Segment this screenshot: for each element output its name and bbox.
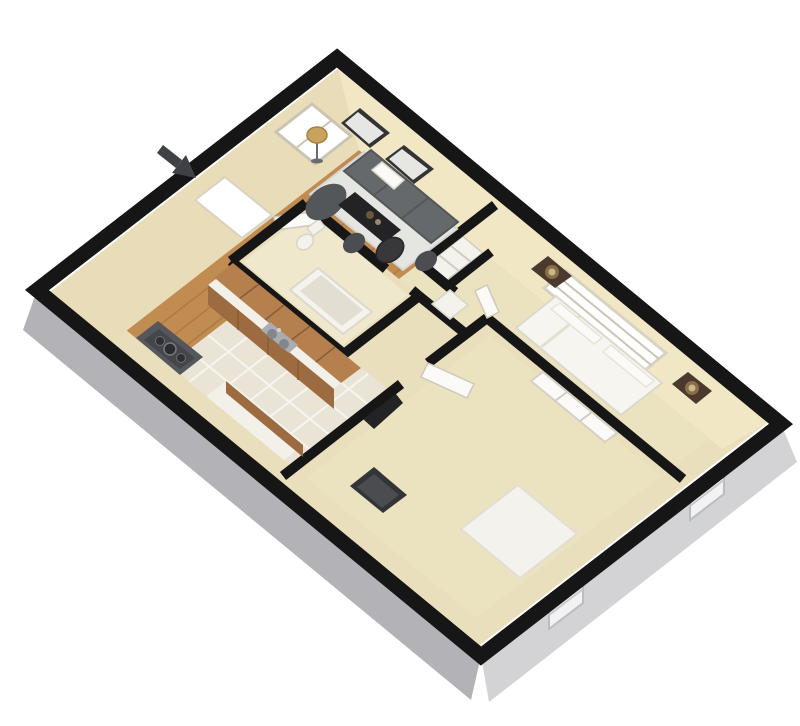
faucet [277,328,281,332]
floor-plan-canvas [0,0,800,726]
burner [177,354,186,363]
floor-plan-3d-rendering [0,0,800,726]
lamp-shade-top [549,269,556,276]
lamp-shade-top [689,385,696,392]
bathroom-wall-right-stub [412,290,419,296]
pot [164,343,176,355]
entry-arrow-icon [157,145,196,178]
burner [156,337,165,346]
table-decor [375,219,381,225]
table-decor [366,211,374,219]
